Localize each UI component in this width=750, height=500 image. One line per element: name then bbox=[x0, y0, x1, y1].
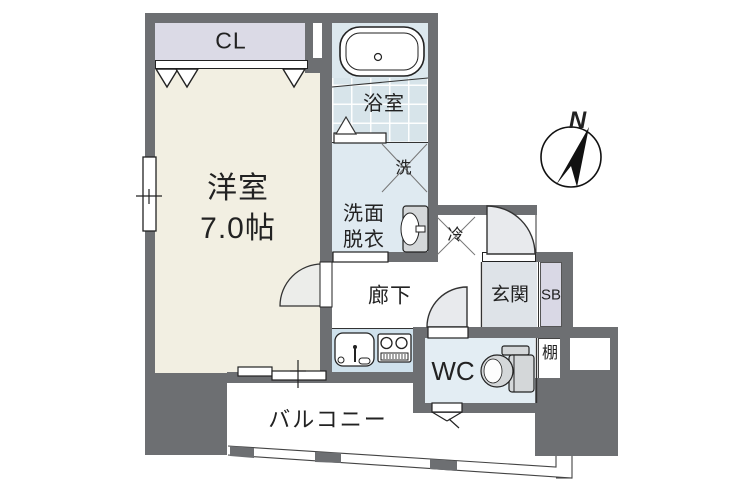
label-washroom-1: 洗面 bbox=[343, 204, 385, 224]
label-closet: CL bbox=[215, 30, 246, 53]
wall bbox=[413, 328, 425, 413]
wall bbox=[320, 60, 332, 383]
wall bbox=[413, 327, 618, 338]
wall bbox=[570, 370, 618, 380]
wall bbox=[145, 373, 227, 455]
wall bbox=[428, 13, 438, 262]
compass-icon bbox=[541, 127, 601, 187]
wall bbox=[145, 13, 438, 23]
wall bbox=[413, 403, 535, 413]
wall bbox=[428, 205, 537, 215]
entrance-door-threshold bbox=[482, 252, 536, 262]
label-entrance: 玄関 bbox=[491, 286, 529, 305]
label-balcony: バルコニー bbox=[268, 409, 388, 431]
balcony-railing bbox=[228, 446, 572, 478]
label-washer: 洗 bbox=[395, 161, 412, 177]
floor-plan: CL 洋室 7.0帖 浴室 洗面 脱衣 洗 冷 廊下 玄関 SB WC 棚 バル… bbox=[0, 0, 750, 500]
label-compass-north: N bbox=[569, 109, 587, 133]
wc-door-arc bbox=[427, 287, 467, 327]
wall bbox=[227, 372, 425, 383]
kitchen-counter bbox=[330, 328, 413, 374]
label-hallway: 廊下 bbox=[368, 286, 412, 307]
label-wc: WC bbox=[431, 358, 474, 384]
label-shelf: 棚 bbox=[542, 346, 558, 362]
label-western-room: 洋室 bbox=[207, 174, 269, 204]
wall bbox=[560, 338, 570, 380]
wall bbox=[322, 252, 438, 262]
label-shoe-box: SB bbox=[541, 288, 561, 303]
label-washroom-2: 脱衣 bbox=[343, 230, 385, 250]
wall bbox=[562, 252, 573, 338]
label-western-room-size: 7.0帖 bbox=[200, 214, 276, 244]
closet-door bbox=[155, 60, 308, 69]
wall-slot bbox=[313, 23, 322, 58]
wall bbox=[535, 378, 618, 456]
label-bathroom: 浴室 bbox=[363, 94, 405, 114]
label-fridge: 冷 bbox=[447, 228, 464, 244]
